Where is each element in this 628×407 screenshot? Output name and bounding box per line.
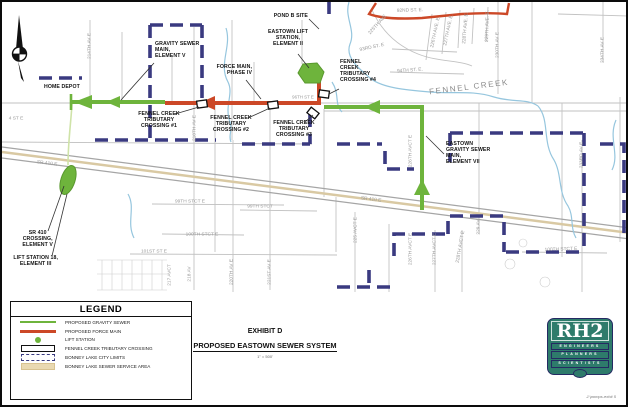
legend-force-main-swatch [17, 330, 59, 333]
leader-eastown-gravity-main [426, 136, 444, 154]
proposed-gravity-sewer-line [71, 94, 430, 210]
sr410-highway [2, 147, 628, 239]
callout-fennel-crossing-3: FENNEL CREEKTRIBUTARYCROSSING #3 [273, 121, 314, 139]
callout-home-depot: HOME DEPOT [44, 85, 80, 91]
street-grid [2, 2, 628, 292]
legend-tributary-crossing-swatch [17, 345, 59, 352]
sw-rect-tan [21, 363, 55, 370]
exhibit-scale: 1" = 500' [179, 354, 351, 359]
sw-line-green [20, 321, 56, 323]
callout-leader-lines [48, 19, 444, 256]
legend-panel: LEGEND PROPOSED GRAVITY SEWERPROPOSED FO… [10, 301, 192, 400]
callout-gravity-sewer-main: GRAVITY SEWERMAIN,ELEMENT V [155, 42, 199, 60]
sw-line-red [20, 330, 56, 333]
leader-sr410-crossing [48, 186, 64, 231]
exhibit-title: PROPOSED EASTOWN SEWER SYSTEM [193, 341, 336, 352]
callout-line: PHASE IV [217, 71, 252, 77]
legend-gravity-sewer-label: PROPOSED GRAVITY SEWER [65, 320, 130, 325]
callout-line: ELEMENT V [155, 54, 199, 60]
legend-title: LEGEND [11, 302, 191, 317]
callout-line: ELEMENT V [22, 243, 53, 249]
title-block: EXHIBIT D PROPOSED EASTOWN SEWER SYSTEM … [179, 328, 351, 359]
callout-line: ELEMENT III [13, 262, 58, 268]
callout-line: CROSSING #2 [210, 128, 251, 134]
north-arrow-icon [13, 15, 27, 82]
rh2-logo-bar: ENGINEERS [551, 343, 609, 351]
legend-service-area-swatch [17, 363, 59, 370]
legend-force-main-label: PROPOSED FORCE MAIN [65, 329, 121, 334]
callout-force-main: FORCE MAIN,PHASE IV [217, 65, 252, 77]
leader-fennel-crossing-4 [329, 89, 339, 94]
legend-service-area-label: BONNEY LAKE SEWER SERVICE AREA [65, 364, 150, 369]
leader-pond-b-site [309, 19, 319, 29]
callout-eastown-gravity-main: EASTOWNGRAVITY SEWERMAIN,ELEMENT VII [446, 142, 490, 166]
callout-sr410-crossing: SR 410CROSSING,ELEMENT V [22, 231, 53, 249]
legend-tributary-crossing: FENNEL CREEK TRIBUTARY CROSSING [17, 345, 187, 353]
callout-line: ELEMENT VII [446, 160, 490, 166]
callout-line: CROSSING #1 [138, 124, 179, 130]
callout-pond-b-site: POND B SITE [274, 14, 308, 20]
callout-fennel-crossing-4: FENNELCREEKTRIBUTARYCROSSING #4 [340, 60, 376, 84]
city-limits-boundary [39, 2, 624, 287]
rh2-logo-bar: PLANNERS [551, 351, 609, 359]
legend-tributary-crossing-label: FENNEL CREEK TRIBUTARY CROSSING [65, 346, 153, 351]
legend-city-limits-swatch [17, 354, 59, 361]
legend-service-area: BONNEY LAKE SEWER SERVICE AREA [17, 363, 187, 371]
legend-city-limits: BONNEY LAKE CITY LIMITS [17, 354, 187, 362]
legend-gravity-sewer-swatch [17, 321, 59, 323]
callout-line: CROSSING #3 [273, 133, 314, 139]
rh2-logo: RH2 ENGINEERSPLANNERSSCIENTISTS [547, 318, 613, 375]
callout-line: POND B SITE [274, 14, 308, 20]
callout-eastown-lift-station: EASTOWN LIFTSTATION,ELEMENT II [268, 30, 308, 48]
eastown-lift-station-marker [298, 63, 324, 83]
callout-line: CROSSING #4 [340, 78, 376, 84]
callout-lift-station-18: LIFT STATION 18,ELEMENT III [13, 256, 58, 268]
sw-dot-green [35, 337, 41, 343]
callout-fennel-crossing-1: FENNEL CREEKTRIBUTARYCROSSING #1 [138, 112, 179, 130]
rh2-logo-name: RH2 [551, 321, 609, 341]
legend-lift-station-label: LIFT STATION [65, 337, 95, 342]
sw-rect-dashed [21, 354, 55, 361]
legend-force-main: PROPOSED FORCE MAIN [17, 327, 187, 335]
leader-lift-station-18 [52, 194, 67, 256]
callout-fennel-crossing-2: FENNEL CREEKTRIBUTARYCROSSING #2 [210, 116, 251, 134]
sw-rect-outline [21, 345, 55, 352]
legend-city-limits-label: BONNEY LAKE CITY LIMITS [65, 355, 125, 360]
callout-line: ELEMENT II [268, 42, 308, 48]
drawing-file-reference: J:\pomps-exh# 5 [586, 394, 616, 399]
exhibit-map-sheet: 92ND ST. E.93RD ST. E94TH ST. E.FENNEL C… [0, 0, 628, 407]
crossing-box-2 [268, 101, 279, 109]
proposed-force-main-line [165, 3, 509, 110]
lift-station-18-marker [57, 164, 80, 197]
callout-line: HOME DEPOT [44, 85, 80, 91]
legend-lift-station-swatch [17, 337, 59, 343]
leader-force-main [246, 80, 261, 99]
legend-gravity-sewer: PROPOSED GRAVITY SEWER [17, 318, 187, 326]
crossing-box-4 [319, 90, 330, 98]
legend-lift-station: LIFT STATION [17, 336, 187, 344]
exhibit-number: EXHIBIT D [179, 328, 351, 335]
rh2-logo-bar: SCIENTISTS [551, 360, 609, 368]
